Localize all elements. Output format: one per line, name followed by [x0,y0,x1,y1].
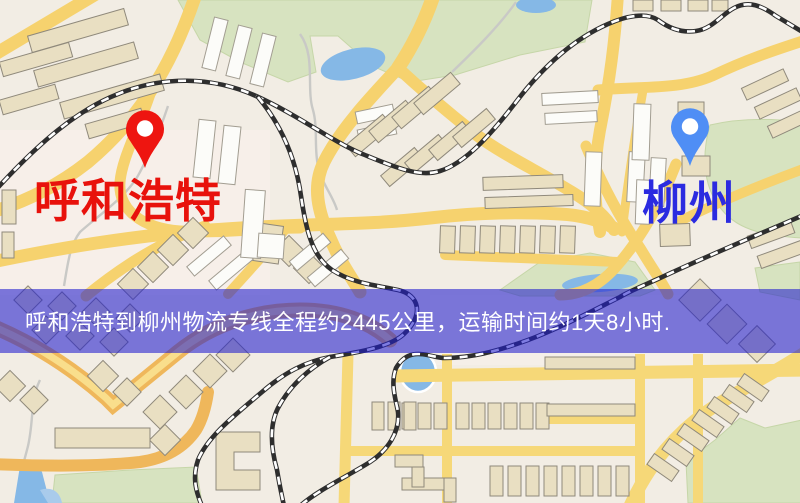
logistics-route-map: 呼和浩特 柳州 呼和浩特到柳州物流专线全程约2445公里，运输时间约1天8小时. [0,0,800,503]
map-canvas[interactable] [0,0,800,503]
destination-city-label: 柳州 [642,180,736,226]
route-info-text: 呼和浩特到柳州物流专线全程约2445公里，运输时间约1天8小时. [0,305,671,337]
route-info-banner: 呼和浩特到柳州物流专线全程约2445公里，运输时间约1天8小时. [0,289,800,353]
origin-pin-icon[interactable] [123,110,167,170]
destination-pin-icon[interactable] [668,108,712,168]
origin-city-label: 呼和浩特 [34,178,222,224]
